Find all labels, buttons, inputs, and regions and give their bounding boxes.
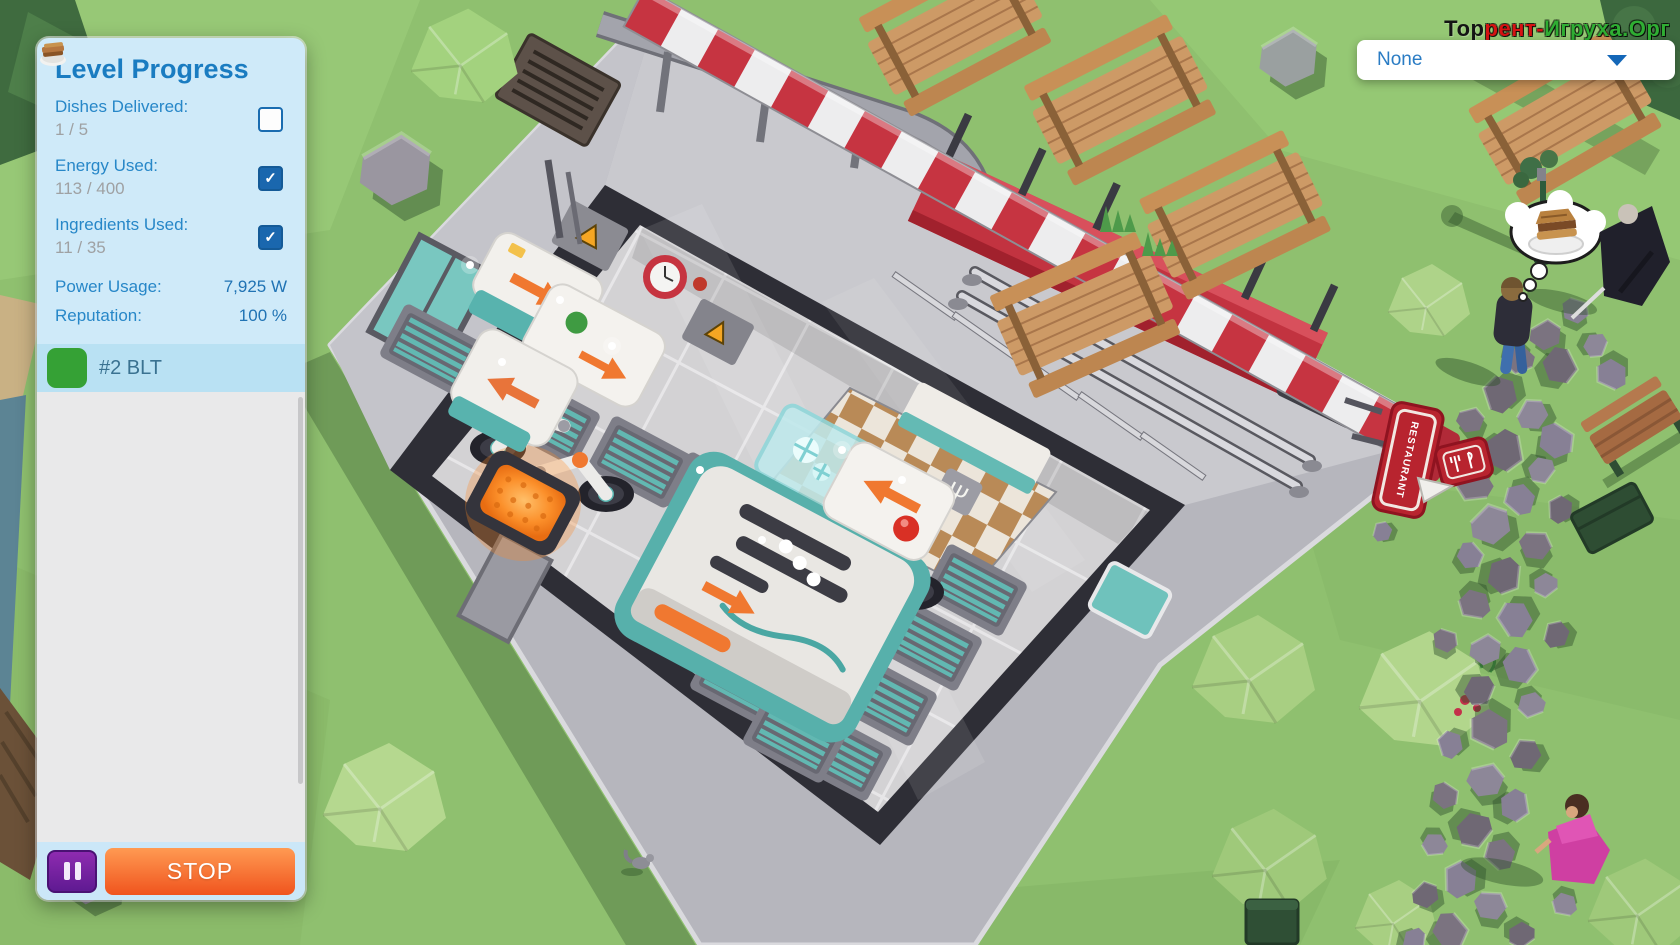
stat-value: 11 / 35 bbox=[55, 236, 243, 259]
stop-button[interactable]: STOP bbox=[105, 848, 295, 895]
pause-button[interactable] bbox=[47, 850, 97, 893]
game-screen: Ψ bbox=[0, 0, 1680, 945]
order-row-blt[interactable]: #2 BLT bbox=[37, 344, 305, 392]
wall-clock bbox=[643, 255, 687, 299]
metric-value: 7,925 W bbox=[224, 272, 287, 301]
panel-stats-section: Level Progress Dishes Delivered: 1 / 5 E… bbox=[37, 38, 305, 344]
metric-value: 100 % bbox=[239, 301, 287, 330]
order-label: #2 BLT bbox=[99, 357, 162, 380]
checkbox-dishes[interactable] bbox=[258, 107, 283, 132]
stat-energy-used: Energy Used: 113 / 400 ✓ bbox=[55, 154, 287, 200]
watermark-part-3: Игруха.Орг bbox=[1544, 16, 1670, 41]
stat-label: Ingredients Used: bbox=[55, 213, 243, 236]
pause-icon bbox=[64, 862, 70, 880]
stat-value: 1 / 5 bbox=[55, 118, 243, 141]
sandwich-thought bbox=[1534, 208, 1577, 240]
order-list[interactable] bbox=[37, 392, 305, 842]
dropdown-value: None bbox=[1357, 49, 1607, 71]
panel-title: Level Progress bbox=[55, 54, 287, 85]
pause-icon-bar bbox=[75, 862, 81, 880]
checkbox-ingredients[interactable]: ✓ bbox=[258, 225, 283, 250]
site-watermark: Торрент-Игруха.Орг bbox=[1444, 16, 1670, 42]
stat-dishes-delivered: Dishes Delivered: 1 / 5 bbox=[55, 95, 287, 141]
level-progress-panel: Level Progress Dishes Delivered: 1 / 5 E… bbox=[37, 38, 305, 900]
chevron-down-icon bbox=[1607, 55, 1627, 66]
overlay-mode-dropdown[interactable]: None bbox=[1357, 40, 1675, 80]
checkbox-energy[interactable]: ✓ bbox=[258, 166, 283, 191]
stat-label: Energy Used: bbox=[55, 154, 243, 177]
metric-label: Reputation: bbox=[55, 301, 142, 330]
watermark-part-1: Тор bbox=[1444, 16, 1484, 41]
trash-bin bbox=[1246, 900, 1298, 944]
scrollbar[interactable] bbox=[298, 397, 303, 784]
metric-power-usage: Power Usage: 7,925 W bbox=[55, 272, 287, 301]
metric-label: Power Usage: bbox=[55, 272, 162, 301]
watermark-part-2: рент- bbox=[1485, 16, 1545, 41]
stat-ingredients-used: Ingredients Used: 11 / 35 ✓ bbox=[55, 213, 287, 259]
panel-footer: STOP bbox=[37, 842, 305, 900]
stat-label: Dishes Delivered: bbox=[55, 95, 243, 118]
blt-sandwich-icon bbox=[47, 348, 87, 388]
metric-reputation: Reputation: 100 % bbox=[55, 301, 287, 330]
stat-value: 113 / 400 bbox=[55, 177, 243, 200]
